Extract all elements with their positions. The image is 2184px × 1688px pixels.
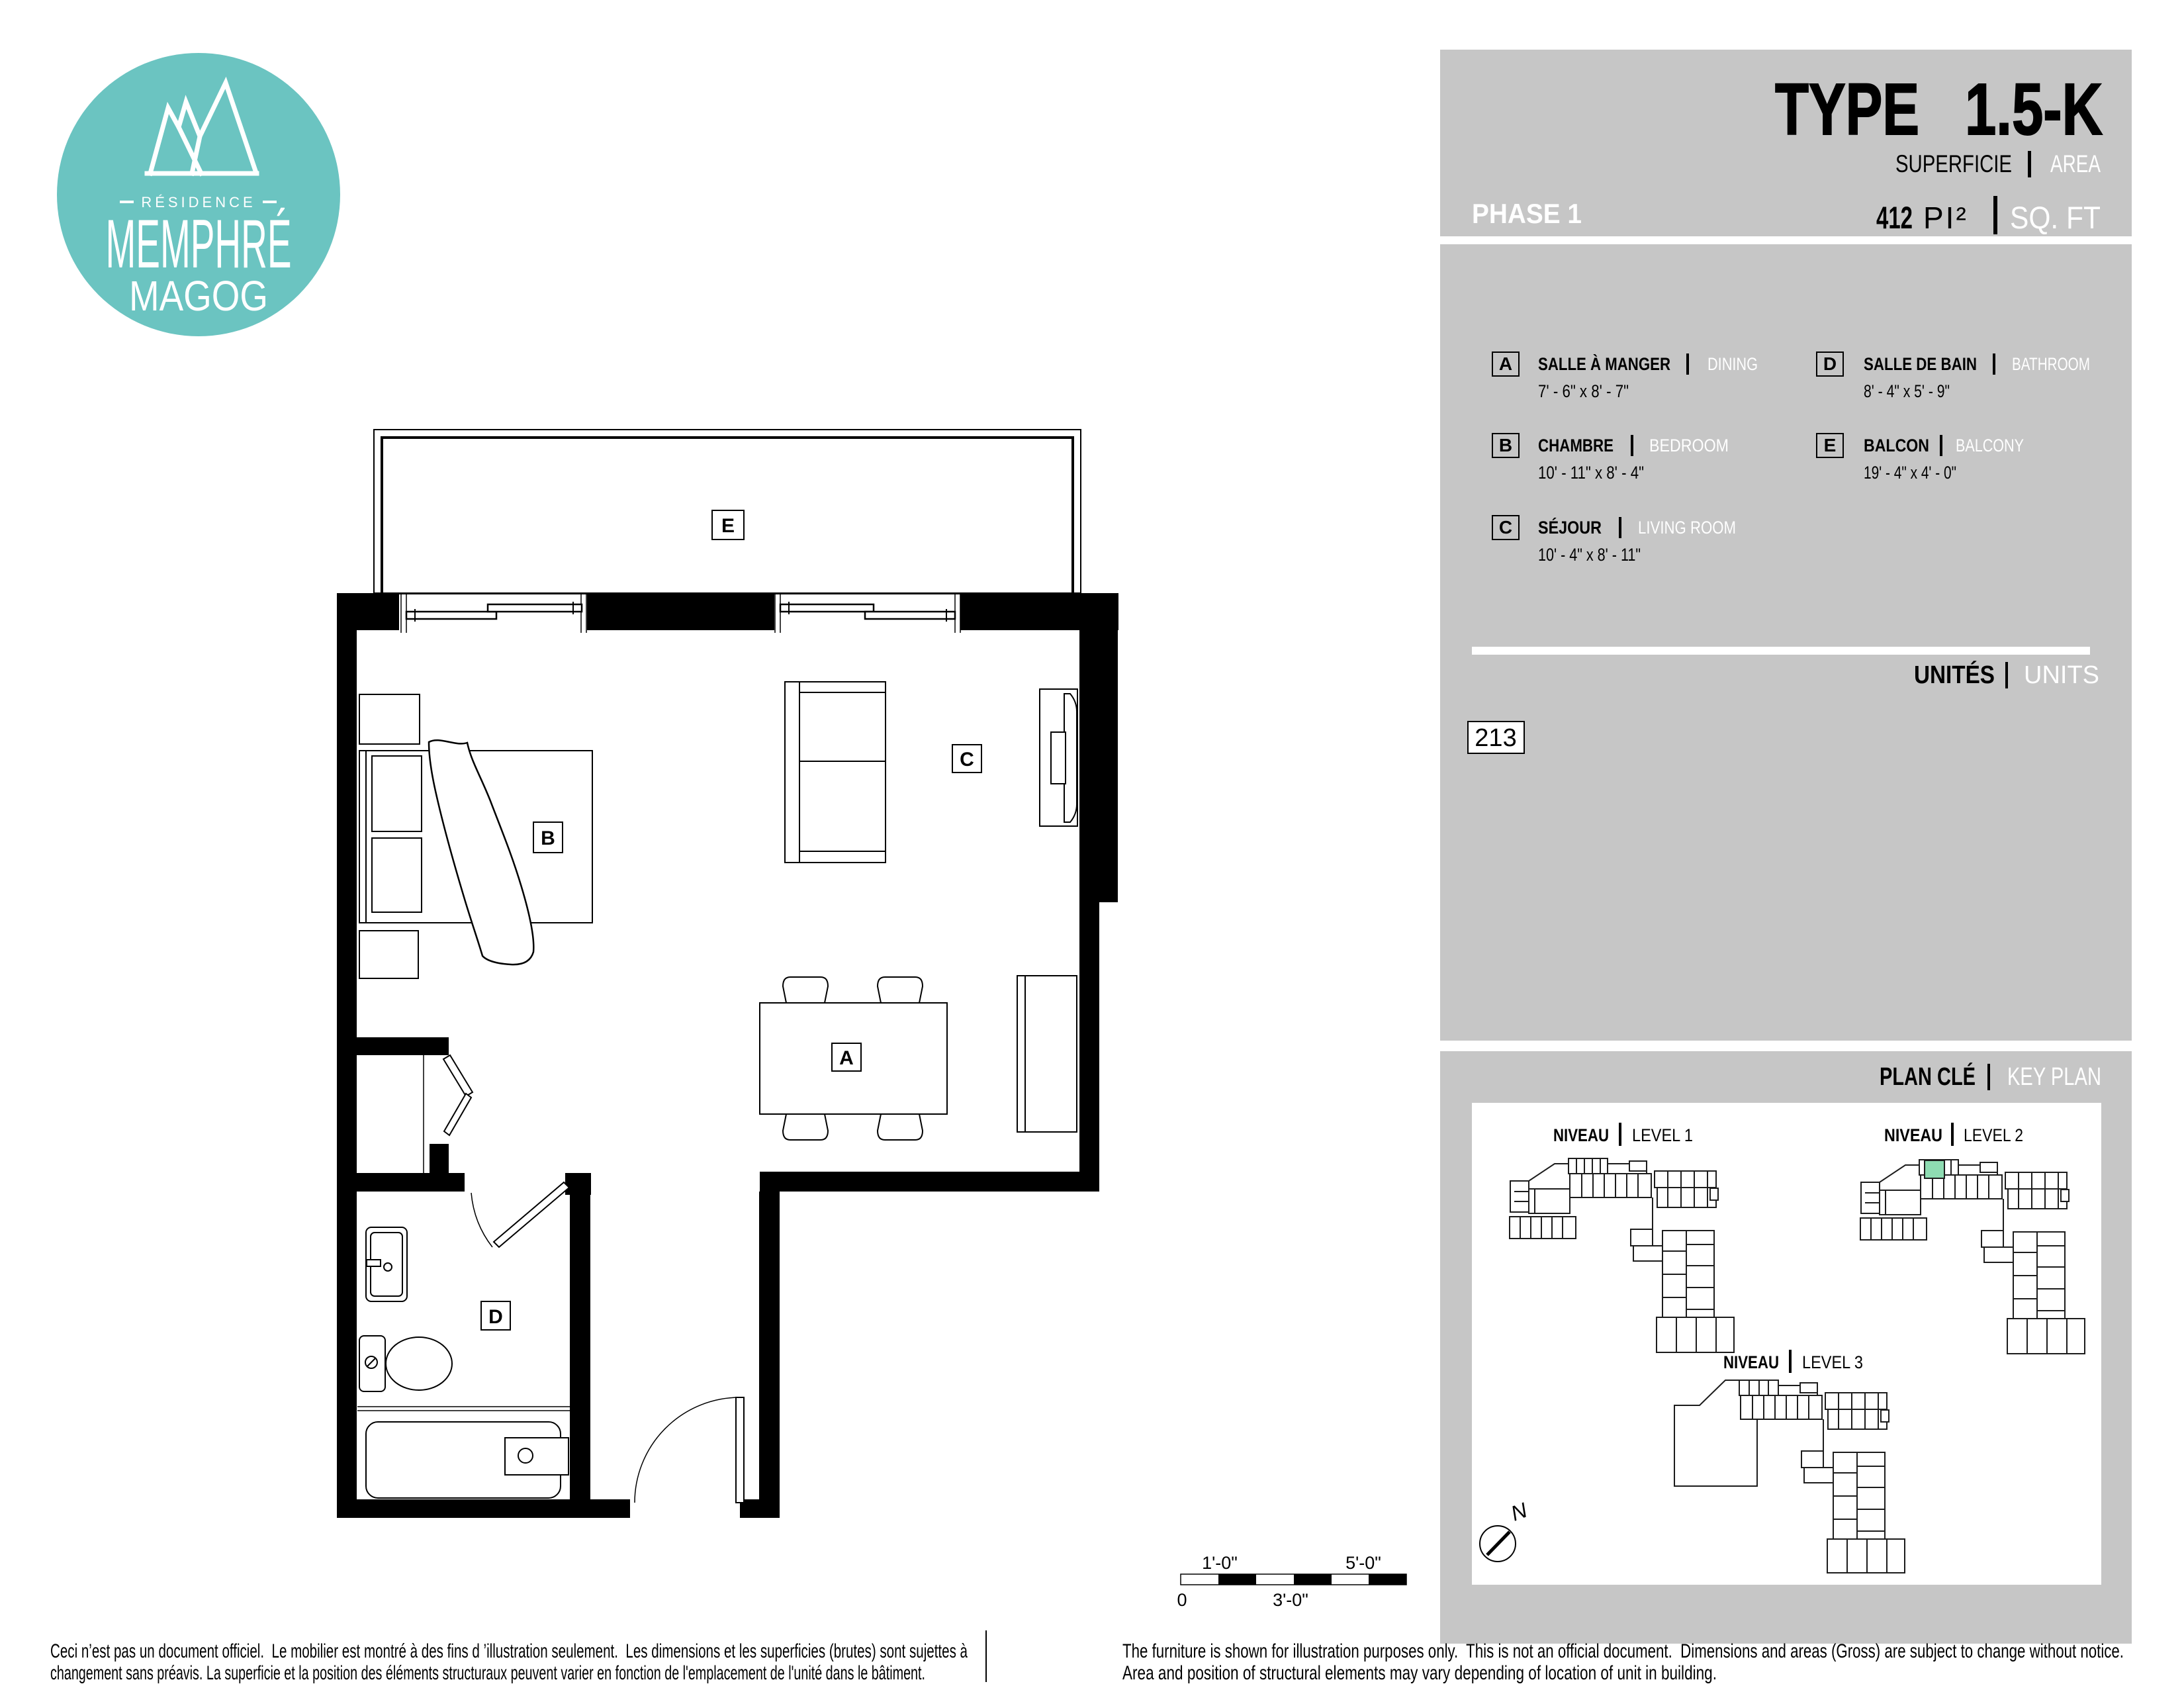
svg-text:DINING: DINING <box>1707 354 1758 374</box>
svg-text:SÉJOUR: SÉJOUR <box>1538 517 1602 538</box>
svg-text:D: D <box>1823 353 1837 374</box>
svg-text:PI²: PI² <box>1923 201 1968 235</box>
svg-text:LEVEL 2: LEVEL 2 <box>1964 1125 2023 1145</box>
svg-text:BATHROOM: BATHROOM <box>2012 354 2090 374</box>
svg-text:10' - 4" x 8' - 11": 10' - 4" x 8' - 11" <box>1538 545 1641 565</box>
svg-text:19' - 4" x 4' - 0": 19' - 4" x 4' - 0" <box>1864 463 1956 483</box>
svg-text:412: 412 <box>1876 200 1913 235</box>
svg-text:CHAMBRE: CHAMBRE <box>1538 436 1614 455</box>
svg-text:1.5-K: 1.5-K <box>1965 69 2103 150</box>
svg-text:NIVEAU: NIVEAU <box>1553 1125 1609 1145</box>
svg-text:A: A <box>1499 353 1512 374</box>
svg-text:A: A <box>839 1047 854 1069</box>
svg-text:BEDROOM: BEDROOM <box>1649 436 1729 455</box>
svg-text:SALLE À MANGER: SALLE À MANGER <box>1538 353 1670 374</box>
svg-text:Area and position of structura: Area and position of structural elements… <box>1122 1662 1717 1684</box>
svg-text:B: B <box>541 827 555 849</box>
svg-text:C: C <box>960 749 974 771</box>
svg-text:Ceci n’est pas un document off: Ceci n’est pas un document officiel. Le … <box>50 1640 968 1662</box>
svg-text:3'-0": 3'-0" <box>1273 1590 1308 1610</box>
svg-text:AREA: AREA <box>2050 150 2101 177</box>
svg-text:NIVEAU: NIVEAU <box>1884 1125 1942 1145</box>
svg-text:TYPE: TYPE <box>1775 69 1919 150</box>
svg-text:10' - 11" x 8' - 4": 10' - 11" x 8' - 4" <box>1538 463 1644 483</box>
svg-text:PHASE 1: PHASE 1 <box>1472 198 1582 229</box>
svg-text:The furniture is shown for ill: The furniture is shown for illustration … <box>1122 1640 2124 1662</box>
svg-text:E: E <box>721 515 735 537</box>
svg-text:7' - 6" x 8' - 7": 7' - 6" x 8' - 7" <box>1538 381 1629 401</box>
svg-text:PLAN CLÉ: PLAN CLÉ <box>1880 1062 1976 1091</box>
svg-text:BALCONY: BALCONY <box>1956 436 2024 455</box>
svg-text:SALLE DE BAIN: SALLE DE BAIN <box>1864 354 1977 374</box>
svg-text:C: C <box>1499 517 1512 538</box>
svg-text:UNITÉS: UNITÉS <box>1914 660 1995 689</box>
svg-text:SQ. FT: SQ. FT <box>2010 200 2101 235</box>
svg-text:KEY PLAN: KEY PLAN <box>2007 1063 2101 1091</box>
svg-text:0: 0 <box>1177 1590 1187 1610</box>
svg-text:changement sans préavis. La su: changement sans préavis. La superficie e… <box>50 1662 925 1684</box>
svg-text:213: 213 <box>1475 724 1516 752</box>
svg-text:BALCON: BALCON <box>1864 436 1929 455</box>
svg-text:MAGOG: MAGOG <box>129 272 268 320</box>
svg-text:UNITS: UNITS <box>2024 661 2099 689</box>
svg-text:E: E <box>1824 435 1837 455</box>
svg-text:8' - 4" x 5' - 9": 8' - 4" x 5' - 9" <box>1864 381 1950 401</box>
svg-text:5'-0": 5'-0" <box>1345 1553 1381 1573</box>
svg-text:NIVEAU: NIVEAU <box>1723 1352 1779 1372</box>
svg-text:SUPERFICIE: SUPERFICIE <box>1895 150 2012 177</box>
svg-text:LEVEL 3: LEVEL 3 <box>1802 1352 1863 1372</box>
svg-text:B: B <box>1499 435 1512 455</box>
svg-text:1'-0": 1'-0" <box>1202 1553 1238 1573</box>
svg-text:D: D <box>488 1306 503 1328</box>
svg-text:LIVING ROOM: LIVING ROOM <box>1638 518 1736 538</box>
svg-text:MEMPHRÉ: MEMPHRÉ <box>106 206 292 283</box>
svg-text:LEVEL 1: LEVEL 1 <box>1632 1125 1693 1145</box>
